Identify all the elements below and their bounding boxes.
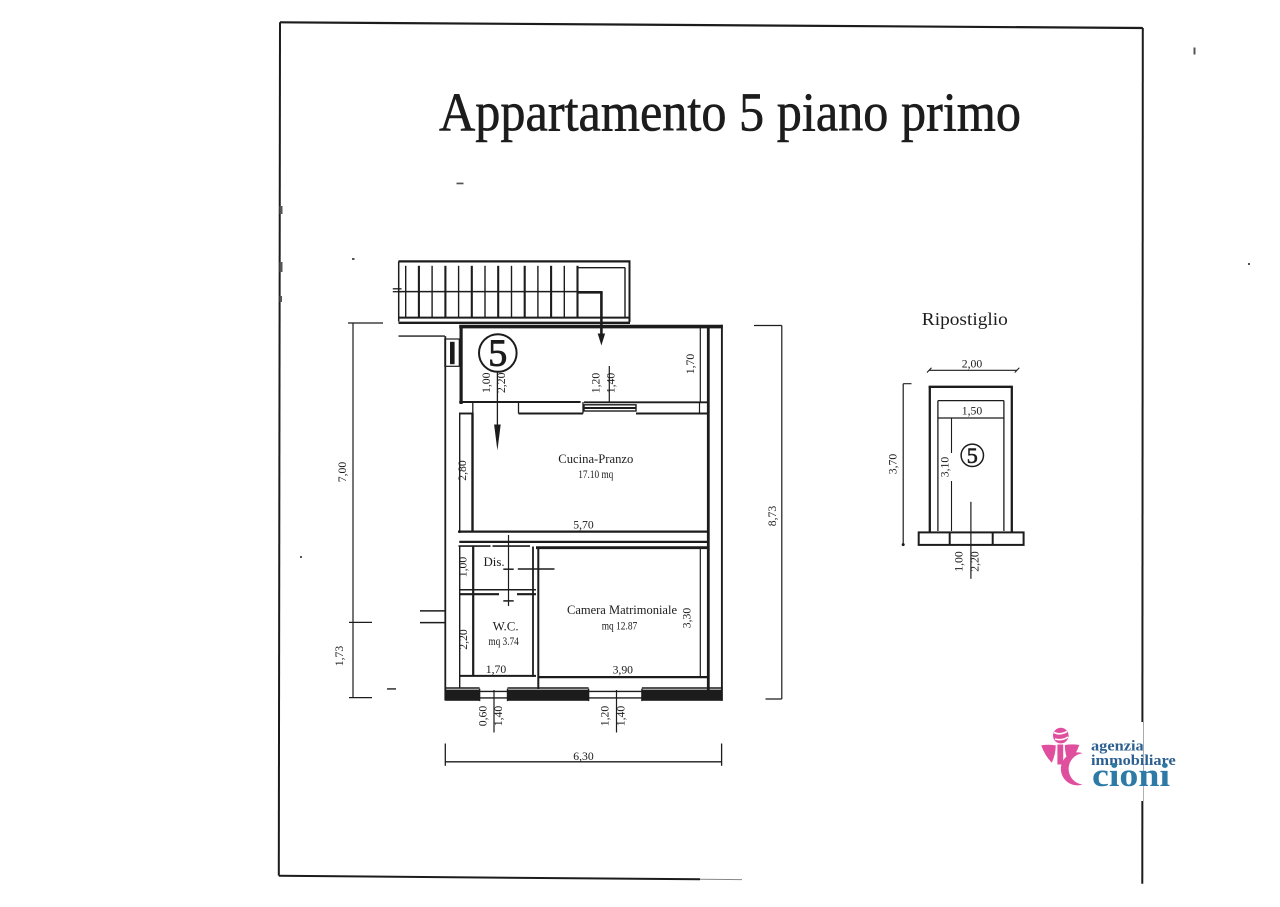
svg-text:1,40: 1,40 xyxy=(614,706,627,727)
svg-text:5: 5 xyxy=(967,443,978,468)
svg-text:8,73: 8,73 xyxy=(766,506,779,527)
svg-text:0,60: 0,60 xyxy=(477,706,490,727)
svg-text:mq 3.74: mq 3.74 xyxy=(488,636,519,648)
svg-text:agenzia: agenzia xyxy=(1091,738,1144,754)
svg-text:Camera Matrimoniale: Camera Matrimoniale xyxy=(567,603,677,617)
svg-text:7,00: 7,00 xyxy=(336,462,349,483)
svg-text:Dis.: Dis. xyxy=(484,555,505,569)
svg-text:1,70: 1,70 xyxy=(486,663,507,676)
svg-text:3,10: 3,10 xyxy=(939,457,952,478)
svg-text:2,00: 2,00 xyxy=(962,357,983,370)
svg-text:6,30: 6,30 xyxy=(573,750,594,763)
svg-text:W.C.: W.C. xyxy=(493,620,519,634)
svg-text:2,20: 2,20 xyxy=(969,551,982,572)
svg-text:5: 5 xyxy=(488,333,507,375)
svg-text:3,70: 3,70 xyxy=(887,454,900,475)
svg-text:5,70: 5,70 xyxy=(573,518,594,531)
svg-text:1,20: 1,20 xyxy=(590,373,603,394)
svg-text:Cucina-Pranzo: Cucina-Pranzo xyxy=(558,452,633,466)
svg-text:1,40: 1,40 xyxy=(605,373,618,394)
svg-text:1,50: 1,50 xyxy=(962,405,983,418)
svg-text:3,90: 3,90 xyxy=(613,664,634,677)
svg-text:1,00: 1,00 xyxy=(456,557,469,578)
svg-text:2,80: 2,80 xyxy=(456,460,469,481)
svg-text:1,73: 1,73 xyxy=(333,646,346,667)
svg-text:1,70: 1,70 xyxy=(684,354,697,375)
svg-text:1,00: 1,00 xyxy=(480,372,493,393)
svg-text:2,20: 2,20 xyxy=(495,372,508,393)
svg-text:1,00: 1,00 xyxy=(953,551,966,572)
svg-text:cioni: cioni xyxy=(1092,758,1170,794)
svg-text:1,40: 1,40 xyxy=(492,706,505,727)
svg-text:mq 12.87: mq 12.87 xyxy=(602,621,638,633)
svg-text:17.10 mq: 17.10 mq xyxy=(578,469,613,481)
svg-text:Ripostiglio: Ripostiglio xyxy=(922,309,1008,329)
svg-text:Appartamento 5 piano primo: Appartamento 5 piano primo xyxy=(439,82,1021,143)
svg-text:3,30: 3,30 xyxy=(681,608,694,629)
svg-text:2,20: 2,20 xyxy=(457,629,470,650)
svg-text:1,20: 1,20 xyxy=(598,706,611,727)
